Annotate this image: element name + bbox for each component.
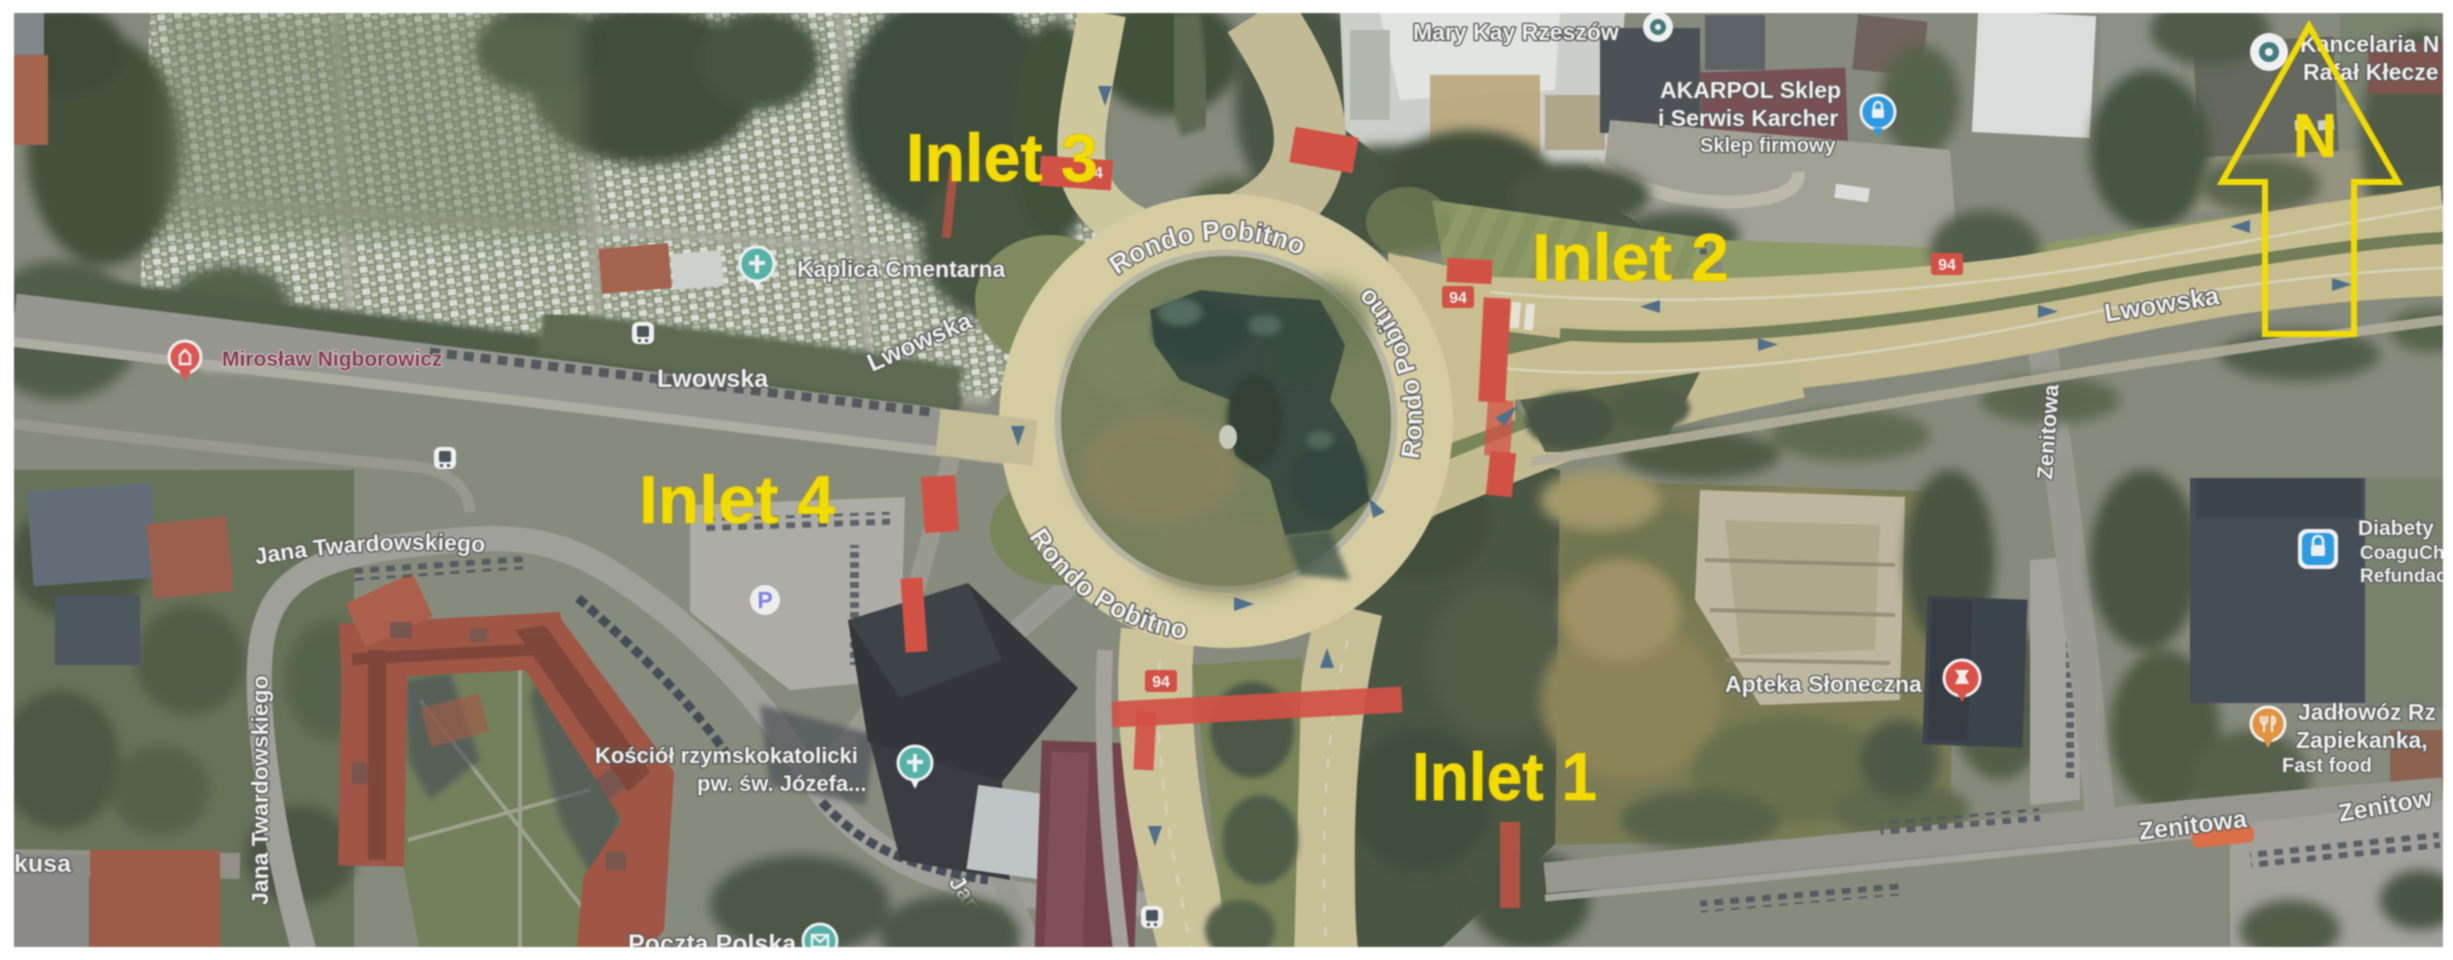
svg-text:Inlet 1: Inlet 1 [1412,739,1597,815]
svg-text:Inlet 2: Inlet 2 [1532,220,1729,296]
svg-text:Inlet 3: Inlet 3 [906,120,1098,196]
svg-text:Inlet 4: Inlet 4 [639,462,835,538]
svg-text:N: N [2293,102,2338,171]
